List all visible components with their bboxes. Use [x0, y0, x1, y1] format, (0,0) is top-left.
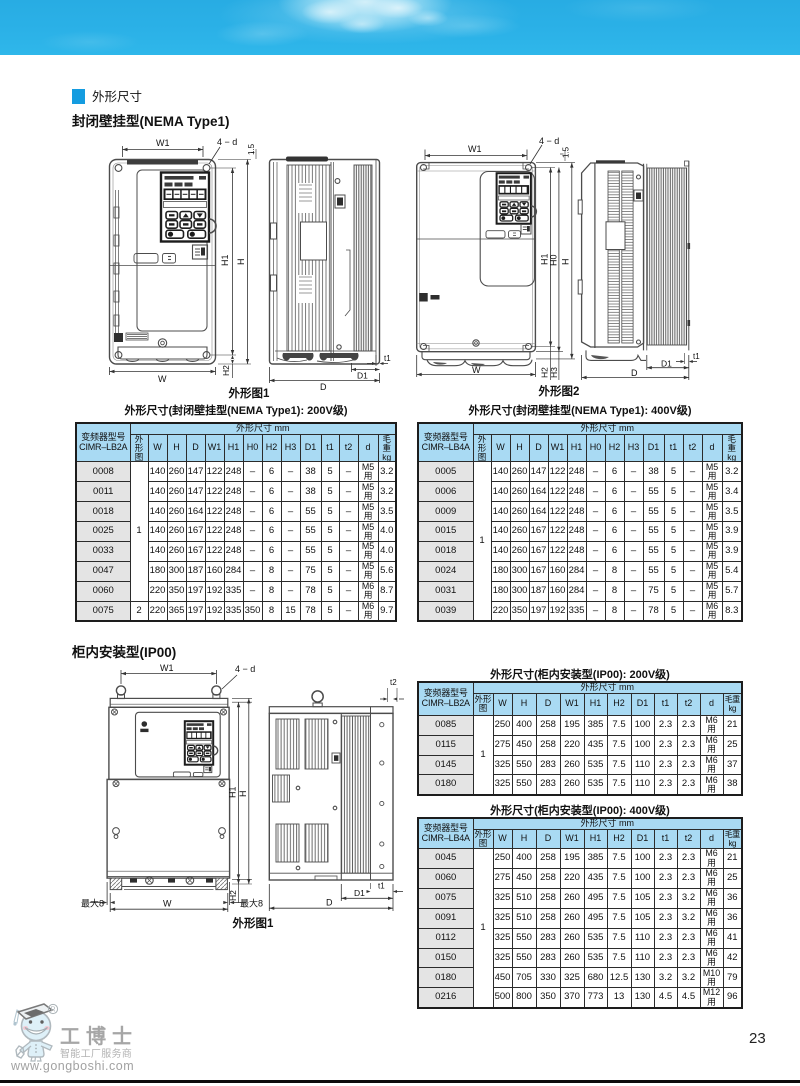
- svg-text:W1: W1: [160, 663, 174, 673]
- svg-text:4 − d: 4 − d: [539, 136, 559, 146]
- svg-text:外形图2: 外形图2: [538, 384, 580, 398]
- svg-text:t1: t1: [693, 352, 700, 361]
- svg-text:外形图1: 外形图1: [228, 386, 270, 400]
- svg-text:W: W: [163, 899, 172, 909]
- svg-text:W1: W1: [156, 138, 170, 148]
- svg-text:最大8: 最大8: [81, 898, 104, 909]
- svg-text:H1: H1: [220, 254, 230, 266]
- svg-text:H1: H1: [228, 786, 238, 798]
- svg-text:W1: W1: [468, 144, 482, 154]
- svg-text:1.5: 1.5: [562, 146, 571, 158]
- svg-text:t2: t2: [390, 678, 397, 687]
- svg-text:H: H: [561, 259, 571, 266]
- svg-text:W: W: [158, 374, 167, 384]
- svg-text:H: H: [236, 259, 246, 266]
- svg-text:最大8: 最大8: [240, 898, 263, 909]
- svg-text:t1: t1: [384, 354, 391, 363]
- svg-text:外形图1: 外形图1: [232, 916, 274, 930]
- svg-text:D1: D1: [357, 371, 368, 381]
- svg-text:H3: H3: [549, 367, 559, 378]
- svg-text:4 − d: 4 − d: [217, 137, 237, 147]
- svg-text:4 − d: 4 − d: [235, 664, 255, 674]
- svg-text:W: W: [472, 365, 481, 375]
- svg-text:D1: D1: [354, 888, 365, 898]
- svg-text:t1: t1: [378, 882, 385, 891]
- svg-text:D: D: [320, 382, 327, 392]
- svg-text:R: R: [50, 1007, 55, 1014]
- svg-text:1.5: 1.5: [247, 143, 256, 155]
- svg-text:D1: D1: [661, 359, 672, 369]
- svg-text:H0: H0: [549, 254, 559, 266]
- svg-text:D: D: [631, 368, 638, 378]
- svg-text:H2: H2: [540, 367, 550, 378]
- svg-text:H2: H2: [228, 890, 238, 901]
- svg-text:D: D: [326, 898, 333, 908]
- svg-text:H2: H2: [221, 365, 231, 376]
- svg-text:H: H: [238, 791, 248, 798]
